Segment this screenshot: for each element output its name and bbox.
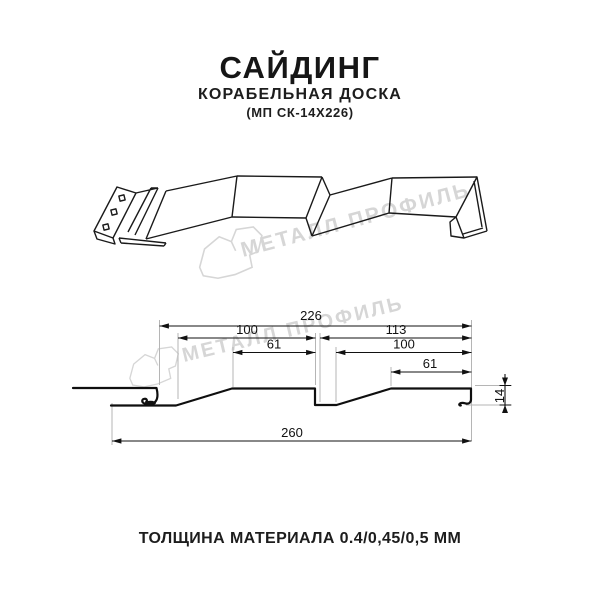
dim-label-right-inner: 100 [393,337,415,352]
dim-label-overall-width: 260 [281,425,303,440]
dimension-lines [112,326,511,441]
dim-label-right-flat: 61 [423,356,437,371]
technical-drawings: МЕТАЛЛ ПРОФИЛЬ МЕТАЛЛ ПРОФИЛЬ [0,0,600,600]
watermark-text: МЕТАЛЛ ПРОФИЛЬ [180,292,406,366]
section-profile [73,388,471,406]
extension-lines [112,320,512,445]
dim-label-left-segment: 100 [236,322,258,337]
thickness-note: ТОЛЩИНА МАТЕРИАЛА 0.4/0,45/0,5 ММ [0,530,600,548]
lock-fold [128,188,166,239]
nail-hole [103,224,109,230]
metall-profil-logo-icon [130,347,178,387]
dim-label-left-flat: 61 [267,337,281,352]
dim-label-right-segment: 113 [386,322,407,337]
lock-seam [119,238,166,246]
dim-label-profile-height: 14 [492,389,507,403]
left-lock-curl [73,388,158,404]
nail-hole [111,209,117,215]
profile-body-line [111,389,471,406]
dim-label-module-width: 226 [300,308,322,323]
nail-strip [94,187,136,238]
nail-hole [119,195,125,201]
product-drawing-sheet: САЙДИНГ КОРАБЕЛЬНАЯ ДОСКА (МП СК-14Х226)… [0,0,600,600]
lock-seam-roll [145,401,156,405]
watermark-text: МЕТАЛЛ ПРОФИЛЬ [238,178,473,261]
